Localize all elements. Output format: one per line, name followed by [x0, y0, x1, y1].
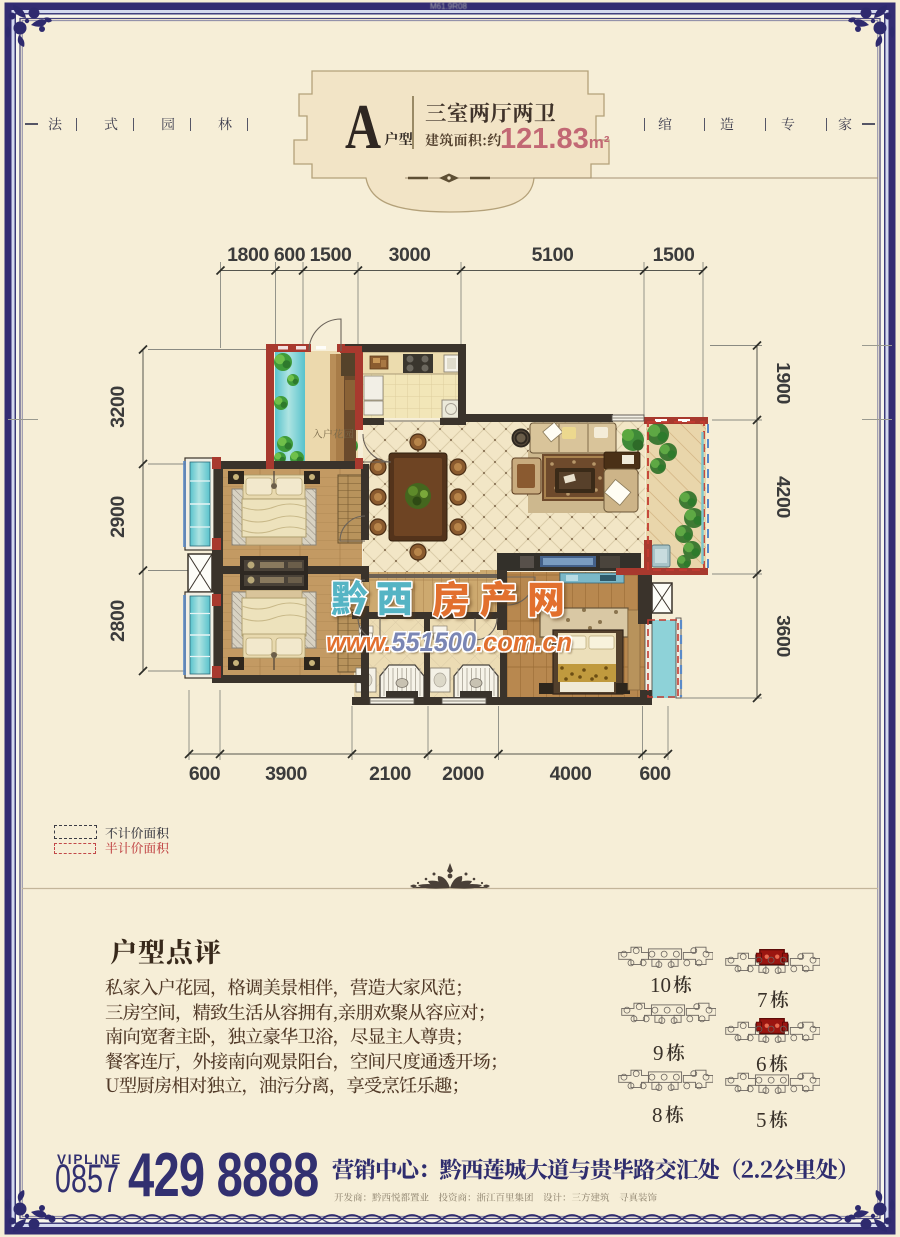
- svg-text:1800: 1800: [227, 244, 269, 266]
- svg-text:1900: 1900: [772, 362, 790, 404]
- svg-text:4200: 4200: [772, 476, 790, 518]
- svg-text:1500: 1500: [653, 244, 695, 266]
- svg-text:3000: 3000: [389, 244, 431, 266]
- svg-text:600: 600: [274, 244, 306, 266]
- svg-text:2800: 2800: [107, 600, 129, 642]
- svg-text:3200: 3200: [107, 386, 129, 428]
- svg-text:2000: 2000: [442, 763, 484, 785]
- svg-text:600: 600: [189, 763, 221, 785]
- svg-text:2100: 2100: [369, 763, 411, 785]
- svg-text:4000: 4000: [550, 763, 592, 785]
- svg-text:3900: 3900: [265, 763, 307, 785]
- svg-text:600: 600: [639, 763, 671, 785]
- svg-text:3600: 3600: [772, 615, 790, 657]
- svg-text:5100: 5100: [532, 244, 574, 266]
- svg-text:2900: 2900: [107, 496, 129, 538]
- svg-text:1500: 1500: [310, 244, 352, 266]
